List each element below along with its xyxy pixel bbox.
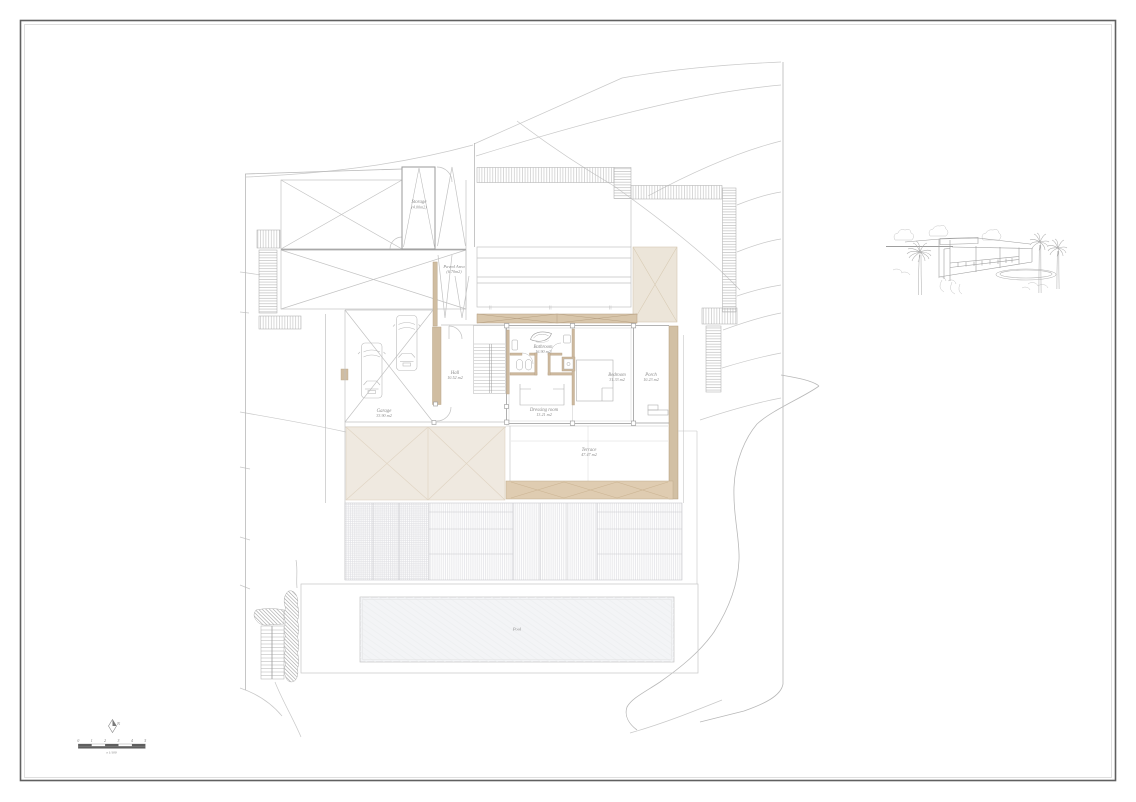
svg-text:4: 4 xyxy=(131,739,133,743)
svg-text:5: 5 xyxy=(144,739,146,743)
svg-text:e 1/100: e 1/100 xyxy=(106,751,116,755)
svg-text:(6.70m2): (6.70m2) xyxy=(446,269,462,274)
svg-text:2: 2 xyxy=(104,739,106,743)
svg-text:3: 3 xyxy=(118,739,120,743)
svg-text:(4.00m2): (4.00m2) xyxy=(411,205,427,210)
svg-text:1: 1 xyxy=(91,739,93,743)
svg-text:10.23 m2: 10.23 m2 xyxy=(643,377,659,382)
svg-text:N: N xyxy=(116,721,121,726)
svg-text:16.90 m2: 16.90 m2 xyxy=(535,349,551,354)
svg-text:10.52 m2: 10.52 m2 xyxy=(447,375,463,380)
svg-text:Pool: Pool xyxy=(512,627,522,632)
svg-text:31.33 m2: 31.33 m2 xyxy=(609,377,625,382)
svg-text:0: 0 xyxy=(77,739,79,743)
svg-text:33.90 m2: 33.90 m2 xyxy=(376,413,392,418)
svg-text:13.21 m2: 13.21 m2 xyxy=(536,412,552,417)
svg-text:47.47 m2: 47.47 m2 xyxy=(581,452,597,457)
